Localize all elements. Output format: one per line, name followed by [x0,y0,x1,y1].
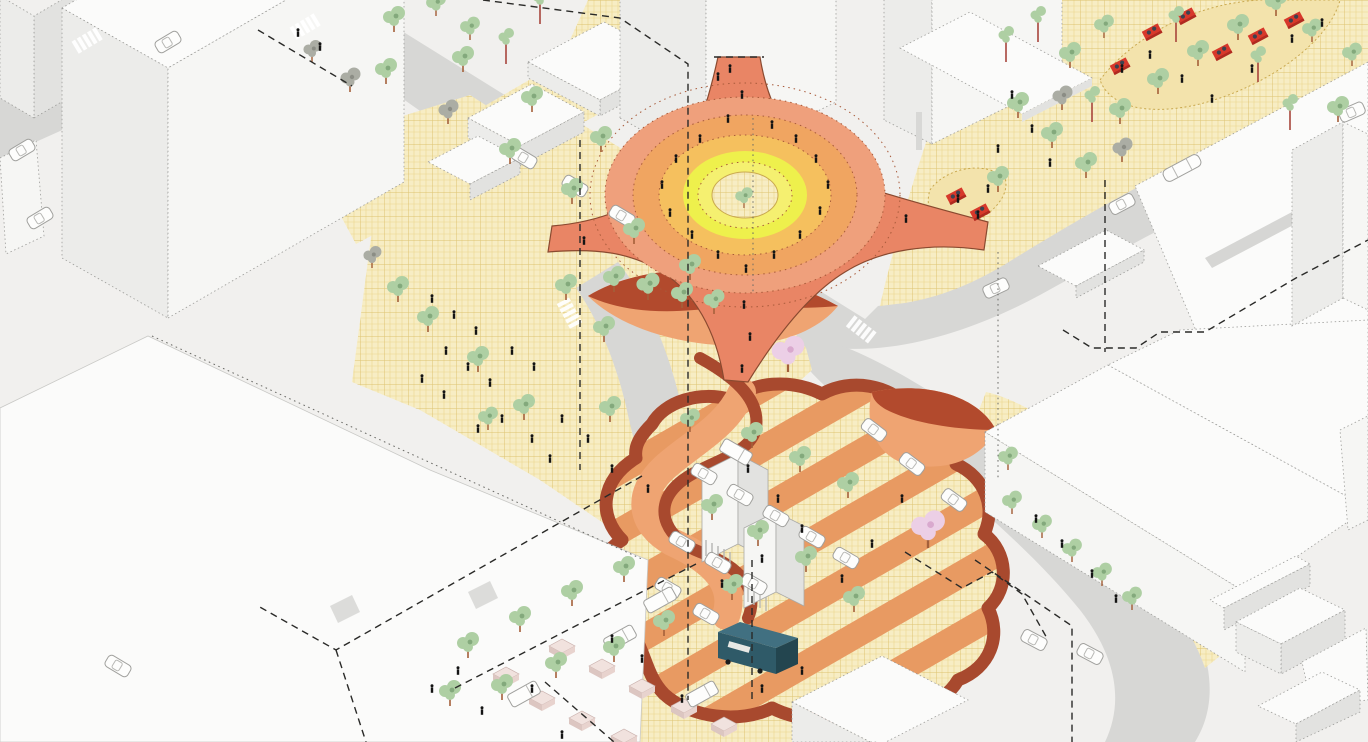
person [1115,594,1118,603]
person [801,666,804,675]
masterplan-illustration [0,0,1368,742]
person [681,694,684,703]
person [699,134,702,143]
person [477,424,480,433]
person [717,250,720,258]
person [475,326,478,335]
person [587,434,590,443]
person [561,414,564,423]
person [691,230,694,239]
person [795,134,798,143]
person [445,346,448,355]
person [1049,158,1052,167]
person [729,64,732,73]
person [1011,90,1014,99]
person [1149,50,1152,59]
person [443,390,446,399]
person [987,184,990,193]
person [1251,64,1254,73]
person [761,554,764,563]
person [431,294,434,303]
person [549,454,552,463]
person [1031,124,1034,133]
person [611,464,614,473]
person [489,378,492,387]
person [531,434,534,443]
person [1091,569,1094,578]
person [583,236,586,245]
person [871,539,874,548]
person [997,144,1000,153]
person [531,684,534,693]
person [717,72,720,81]
person [741,90,744,99]
person [727,114,730,123]
person [1211,94,1214,103]
person [957,194,960,203]
building-right-sliver [1292,122,1368,326]
person [747,464,750,473]
person [773,250,776,258]
person [815,154,818,163]
person [457,666,460,675]
person [611,634,614,643]
masterplan-canvas [0,0,1368,742]
person [743,300,746,309]
person [827,180,830,189]
person [761,684,764,693]
person [467,362,470,371]
person [745,264,748,273]
person [1291,34,1294,43]
person [501,414,504,423]
person [1321,18,1324,27]
person [1121,64,1124,73]
person [777,494,780,503]
person [977,210,980,219]
person [1061,539,1064,548]
person [801,524,804,533]
person [675,154,678,163]
person [721,579,724,588]
person [749,332,752,341]
person [431,684,434,693]
person [511,346,514,355]
person [481,706,484,715]
person [741,364,744,373]
person [905,214,908,223]
person [771,120,774,129]
person [819,206,822,215]
person [641,654,644,663]
person [319,42,322,51]
person [421,374,424,383]
person [533,362,536,371]
person [647,484,650,493]
person [297,28,300,37]
person [1035,514,1038,523]
person [841,574,844,583]
person [1181,74,1184,83]
person [901,494,904,503]
person [561,730,564,739]
person [453,310,456,319]
person [669,208,672,217]
person [661,180,664,189]
person [799,230,802,239]
